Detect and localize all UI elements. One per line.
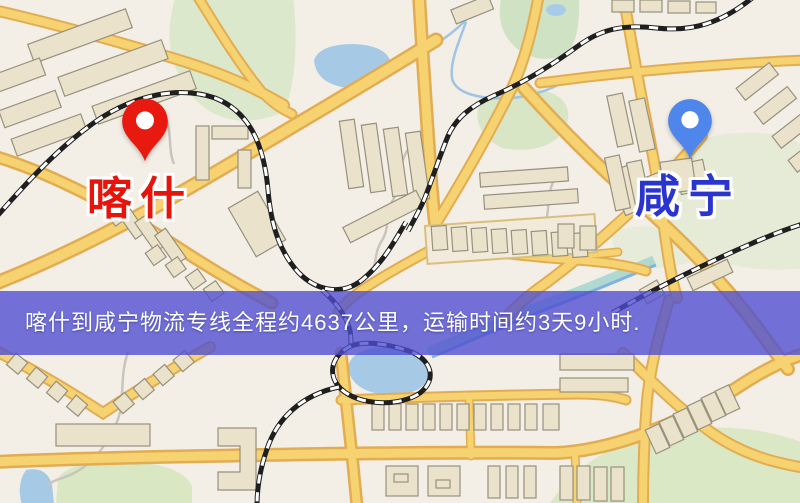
location-pin-icon bbox=[667, 96, 713, 162]
map-view bbox=[0, 0, 800, 503]
kashgar-label: 喀什 bbox=[55, 174, 225, 224]
route-info-banner: 喀什到咸宁物流专线全程约4637公里，运输时间约3天9小时. bbox=[0, 291, 800, 355]
location-pin-icon bbox=[121, 97, 169, 163]
xianning-marker-pin[interactable] bbox=[667, 96, 713, 162]
kashgar-marker-pin[interactable] bbox=[121, 97, 169, 163]
map-canvas bbox=[0, 0, 800, 503]
route-info-text: 喀什到咸宁物流专线全程约4637公里，运输时间约3天9小时. bbox=[0, 291, 800, 355]
xianning-label: 咸宁 bbox=[603, 172, 773, 222]
